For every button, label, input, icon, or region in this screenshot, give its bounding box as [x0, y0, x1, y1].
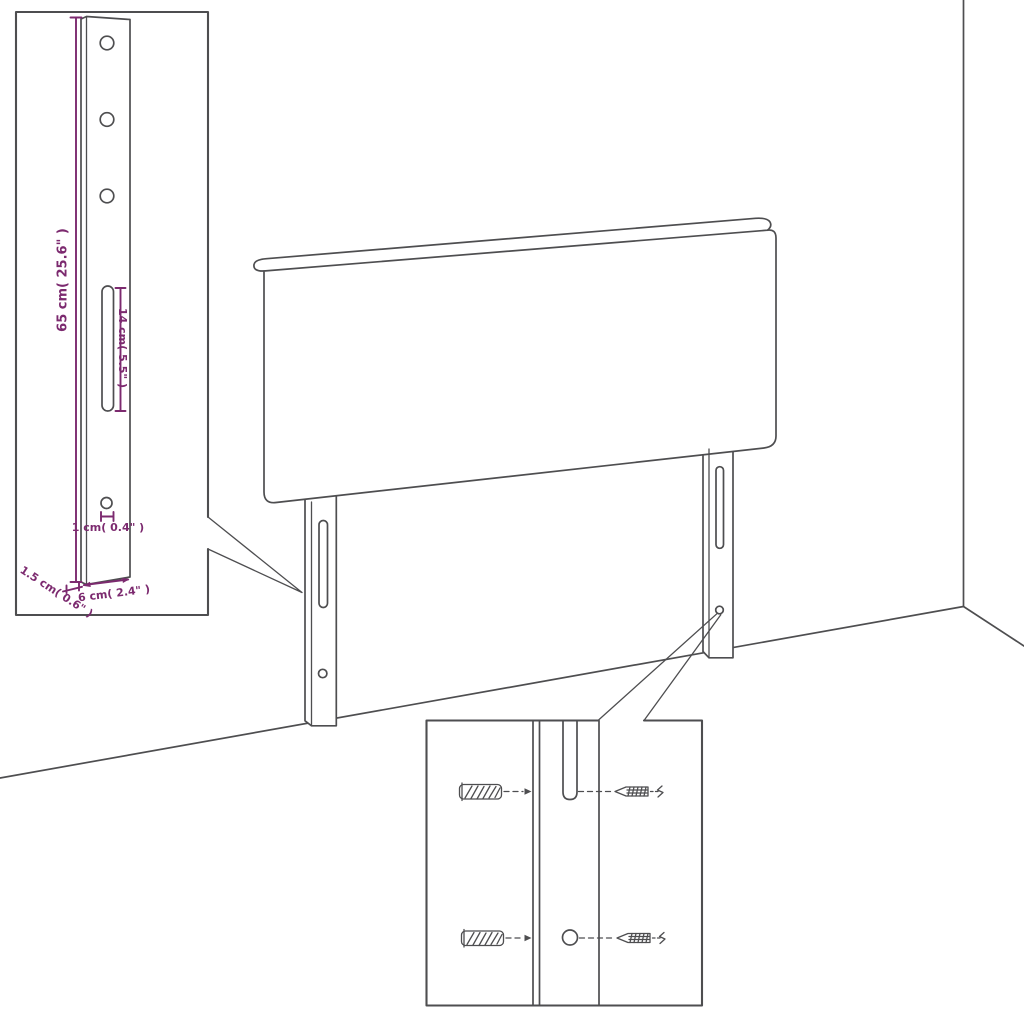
dim-label-14cm: 14 cm( 5.5" )	[116, 308, 129, 388]
headboard-panel	[254, 218, 776, 502]
dim-label-65cm: 65 cm( 25.6" )	[56, 228, 71, 332]
wall-anchor-icon	[460, 783, 502, 801]
callout-box-border	[427, 721, 703, 1006]
headboard-front-face	[264, 230, 776, 503]
floor-line-right	[964, 607, 1024, 647]
screw-icon	[617, 933, 665, 944]
diagram-page: 65 cm( 25.6" ) 14 cm( 5.5" ) 1 cm( 0.4" …	[0, 0, 1024, 1024]
left-callout-leaders	[208, 517, 302, 593]
screw-icon	[615, 786, 663, 797]
leg-strip-edges	[533, 721, 599, 1006]
strip-slot	[563, 721, 577, 800]
wall-anchor-icon	[462, 930, 504, 948]
dashed-arrowhead	[525, 935, 532, 941]
assembly-diagram: 65 cm( 25.6" ) 14 cm( 5.5" ) 1 cm( 0.4" …	[0, 0, 1024, 1024]
floor-line-left	[0, 607, 964, 779]
leg-bracket	[81, 17, 130, 585]
dashed-arrowhead	[525, 788, 532, 794]
strip-hole	[563, 930, 578, 945]
leader-lines	[208, 517, 302, 593]
dim-label-1cm: 1 cm( 0.4" )	[72, 521, 144, 534]
hardware-row-upper	[460, 783, 664, 801]
leg-detail-callout: 65 cm( 25.6" ) 14 cm( 5.5" ) 1 cm( 0.4" …	[16, 12, 208, 620]
hardware-detail-callout	[427, 721, 703, 1006]
right-mounting-leg	[703, 436, 733, 658]
dim-line-65cm	[71, 18, 82, 583]
